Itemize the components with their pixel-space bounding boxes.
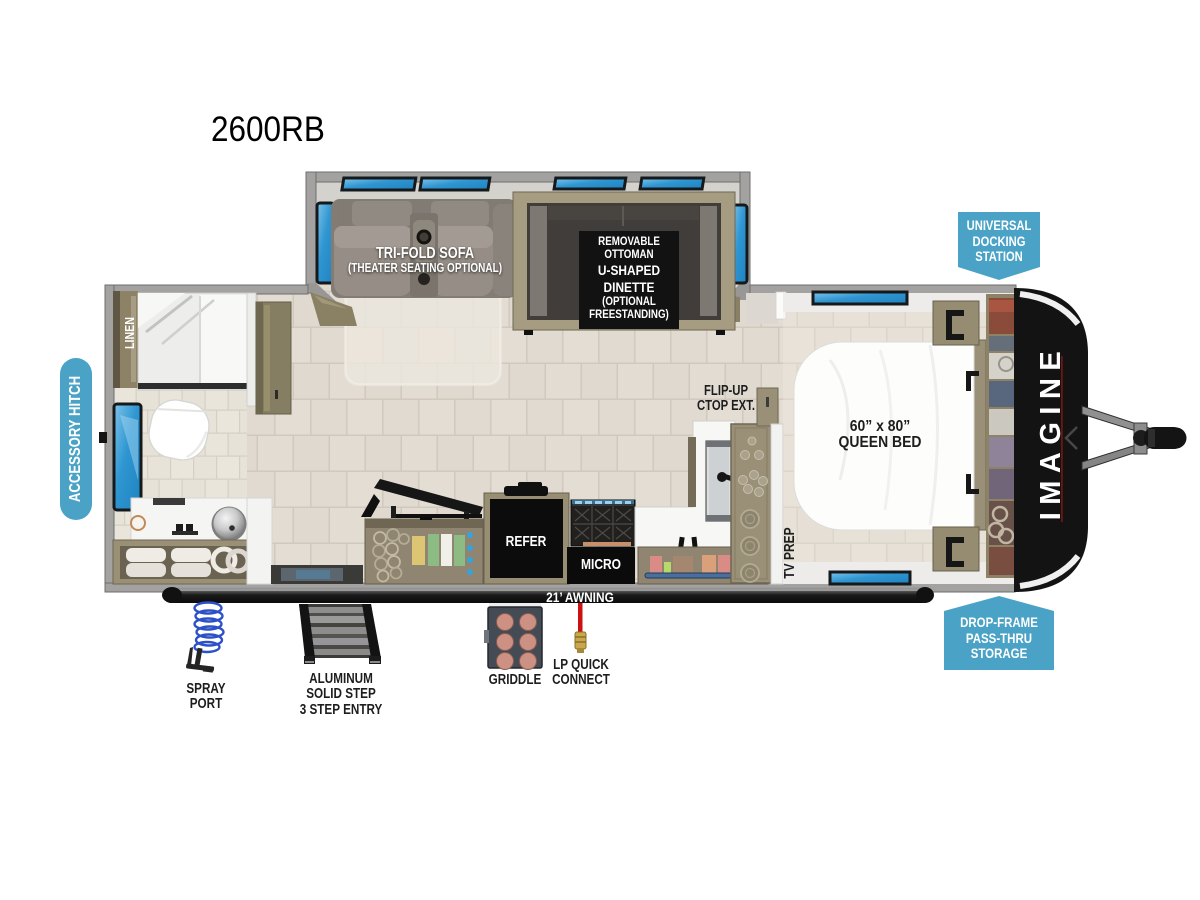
svg-text:IMAGINE: IMAGINE <box>1035 344 1067 521</box>
